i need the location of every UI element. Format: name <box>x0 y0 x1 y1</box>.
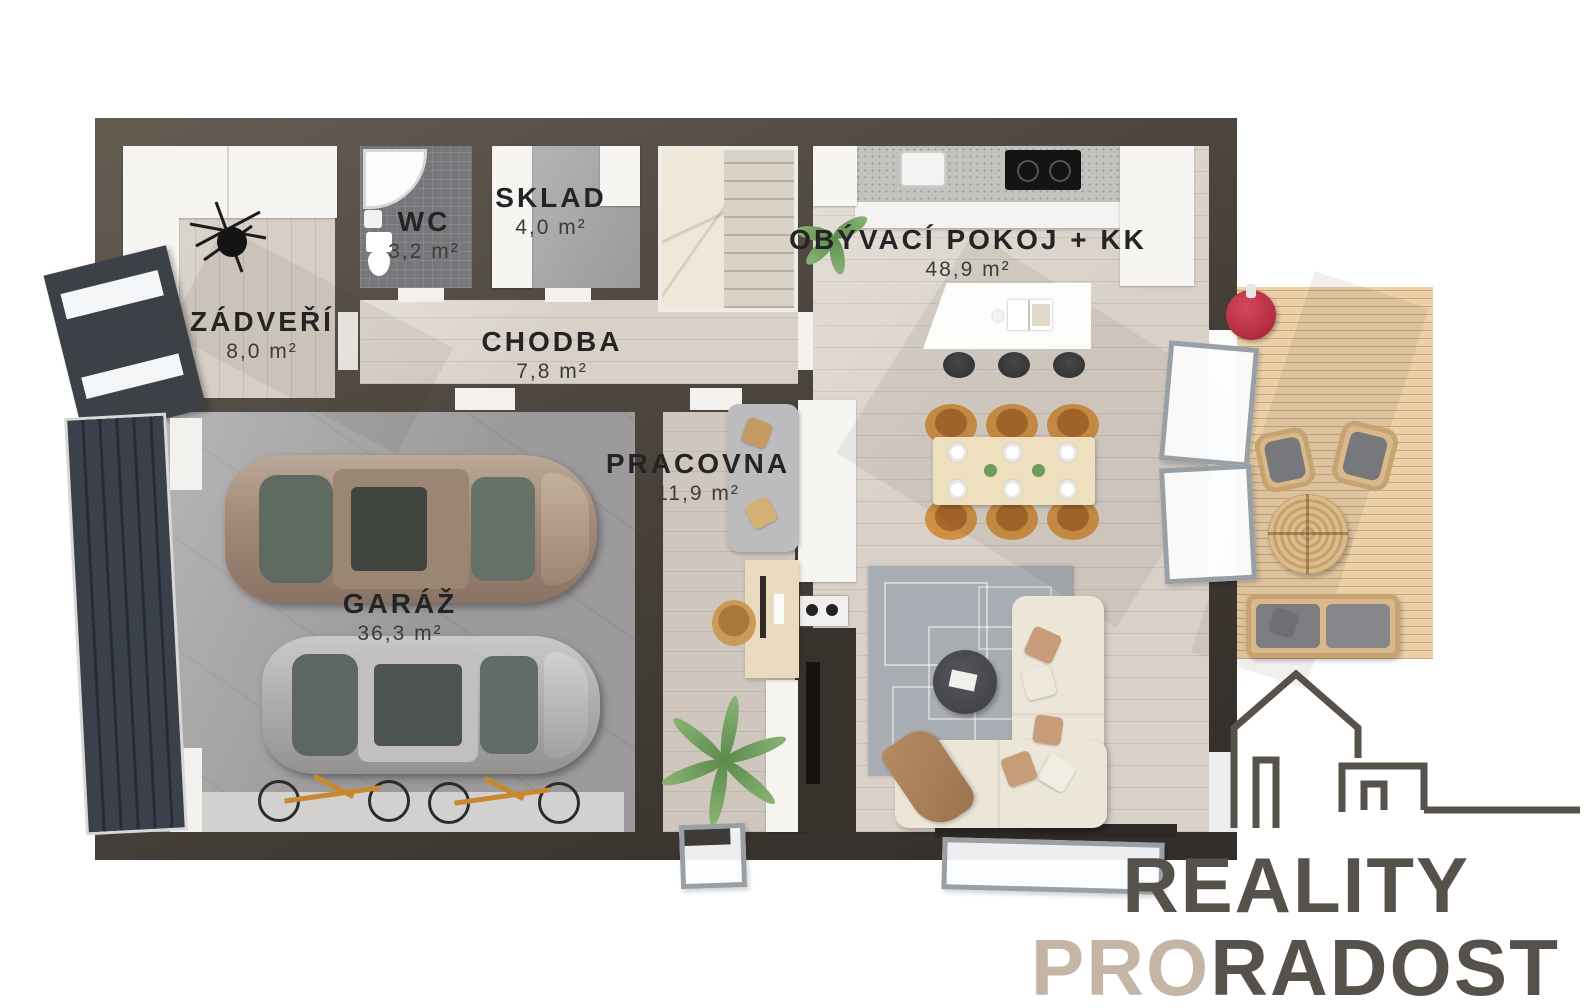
table-plant <box>1032 464 1045 477</box>
table-cross <box>1306 494 1309 574</box>
car-silver <box>262 636 600 774</box>
brand-pro-text: PRO <box>1031 923 1210 1008</box>
fireplace-stove <box>800 596 848 626</box>
floorplan-canvas: ZÁDVEŘÍ 8,0 m² WC 3,2 m² SKLAD 4,0 m² CH… <box>0 0 1595 1008</box>
plate <box>948 443 967 462</box>
coffee-cup <box>992 310 1004 322</box>
bar-stool <box>998 352 1030 378</box>
house-logo-icon <box>1192 662 1582 830</box>
living-doorway <box>798 312 813 370</box>
monitor <box>760 576 766 638</box>
wc-sink <box>364 210 382 228</box>
car-windshield <box>471 477 535 581</box>
room-label-obyvaci-pokoj: OBÝVACÍ POKOJ + KK 48,9 m² <box>789 224 1147 282</box>
room-label-sklad: SKLAD 4,0 m² <box>495 182 606 240</box>
room-name: GARÁŽ <box>343 588 458 620</box>
bicycle <box>258 768 428 826</box>
stair-landing <box>662 150 724 308</box>
stove-knob <box>806 604 818 616</box>
room-name: ZÁDVEŘÍ <box>190 306 334 338</box>
bicycle <box>428 770 598 828</box>
keyboard <box>774 594 784 624</box>
kitchen-sink <box>900 151 946 187</box>
room-name: PRACOVNA <box>606 448 790 480</box>
room-area: 36,3 m² <box>343 622 458 646</box>
car-hood <box>544 652 588 758</box>
patio-sofa <box>1246 594 1400 658</box>
front-door-glass <box>61 270 164 319</box>
kitchen-counter-end <box>813 146 857 206</box>
car-hood <box>541 473 589 585</box>
room-label-garaz: GARÁŽ 36,3 m² <box>343 588 458 646</box>
room-label-chodba: CHODBA 7,8 m² <box>482 326 623 384</box>
plate <box>1058 443 1077 462</box>
bar-stool <box>943 352 975 378</box>
plate <box>948 480 967 499</box>
tv-screen <box>806 662 820 784</box>
brand-word-reality: REALITY <box>1040 846 1470 924</box>
car-windshield <box>480 656 538 754</box>
storage-doorway <box>545 288 591 302</box>
car-rear-glass <box>259 475 333 583</box>
room-name: CHODBA <box>482 326 623 358</box>
brand-radost-text: RADOST <box>1210 923 1560 1008</box>
garage-doorway <box>455 388 515 410</box>
room-name: WC <box>388 206 460 238</box>
room-area: 11,9 m² <box>606 482 790 506</box>
open-book <box>1008 300 1052 330</box>
desk-chair <box>712 600 756 646</box>
living-divider-cabinet <box>798 400 856 582</box>
car-sunroof <box>351 487 427 571</box>
car-bronze <box>225 455 597 603</box>
room-name: SKLAD <box>495 182 606 214</box>
bar-stool <box>1053 352 1085 378</box>
car-rear-glass <box>292 654 358 756</box>
room-label-zadveri: ZÁDVEŘÍ 8,0 m² <box>190 306 334 364</box>
front-door-glass <box>81 353 183 399</box>
staircase <box>658 146 798 312</box>
stove-knob <box>826 604 838 616</box>
wc-doorway <box>398 288 444 302</box>
chair-cushion <box>1263 436 1307 485</box>
brand-word-proradost: PRORADOST <box>1020 928 1560 1008</box>
room-name: OBÝVACÍ POKOJ + KK <box>789 224 1147 256</box>
open-window-panel <box>1159 464 1257 585</box>
burner <box>1049 160 1071 182</box>
kitchen-island <box>923 283 1091 349</box>
room-area: 3,2 m² <box>388 240 460 264</box>
chair-cushion <box>1341 430 1389 482</box>
room-area: 4,0 m² <box>495 216 606 240</box>
room-area: 8,0 m² <box>190 340 334 364</box>
open-window-panel <box>1159 340 1259 467</box>
room-area: 48,9 m² <box>789 258 1147 282</box>
plate <box>1003 480 1022 499</box>
plate <box>1003 443 1022 462</box>
patio-table <box>1268 494 1348 574</box>
stair-treads <box>724 150 794 308</box>
grill <box>1226 290 1276 340</box>
car-cabin <box>374 664 462 746</box>
burner <box>1017 160 1039 182</box>
sofa-cushion <box>1326 604 1390 648</box>
brand-reality-text: REALITY <box>1122 841 1470 929</box>
table-plant <box>984 464 997 477</box>
room-label-wc: WC 3,2 m² <box>388 206 460 264</box>
plate <box>1058 480 1077 499</box>
room-area: 7,8 m² <box>482 360 623 384</box>
room-label-pracovna: PRACOVNA 11,9 m² <box>606 448 790 506</box>
sofa-pillow <box>1032 714 1064 746</box>
basement-window <box>679 823 747 889</box>
grill-handle <box>1246 284 1256 298</box>
entry-hall-doorway <box>338 312 358 370</box>
garage-door-jamb <box>170 418 202 490</box>
coat-rack-icon <box>186 196 270 280</box>
cooktop <box>1005 150 1081 190</box>
window-inner-shadow <box>684 828 731 846</box>
